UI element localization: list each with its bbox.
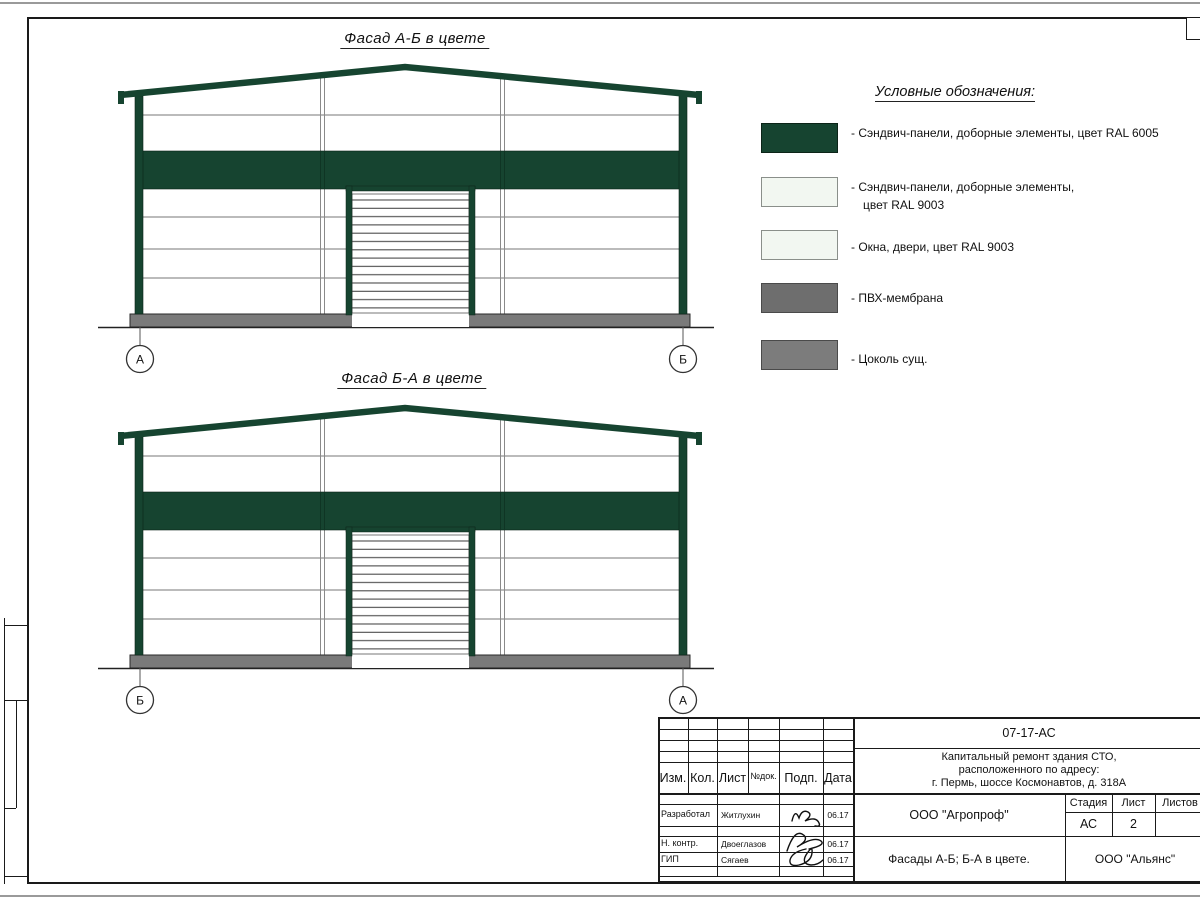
rev-header-podp: Подп. <box>779 762 823 794</box>
legend-label-line2: цвет RAL 9003 <box>863 196 944 214</box>
legend-label: - Сэндвич-панели, доборные элементы, <box>851 178 1074 196</box>
staff-date: 06.17 <box>823 855 853 866</box>
rev-header-list: Лист <box>717 762 748 794</box>
legend-swatch-ral9003-panels <box>761 177 838 207</box>
staff-name: Житлухин <box>721 810 779 821</box>
facade-ab-drawing: А Б <box>98 67 714 373</box>
legend-label: - Цоколь сущ. <box>851 350 927 368</box>
staff-name: Двоеглазов <box>721 839 779 850</box>
sheet-value: 2 <box>1112 817 1155 831</box>
signatures <box>787 811 823 865</box>
designer-org: ООО "Агропроф" <box>853 808 1065 822</box>
legend-swatch-windows-doors <box>761 230 838 260</box>
legend-label: - Окна, двери, цвет RAL 9003 <box>851 238 1014 256</box>
project-line-1: Капитальный ремонт здания СТО, <box>855 751 1200 764</box>
legend-label: - ПВХ-мембрана <box>851 289 943 307</box>
staff-name: Сягаев <box>721 855 779 866</box>
staff-date: 06.17 <box>823 810 853 821</box>
staff-role: Н. контр. <box>661 838 717 849</box>
axis-label: Б <box>136 694 144 708</box>
rev-header-izm: Изм. <box>658 762 688 794</box>
legend-swatch-pvc-membrane <box>761 283 838 313</box>
stage-value: АС <box>1065 817 1112 831</box>
axis-label: Б <box>679 353 687 367</box>
legend-swatch-ral6005 <box>761 123 838 153</box>
staff-date: 06.17 <box>823 839 853 850</box>
drawing-sheet: А Б Б А Фасад А-Б в цвете Фасад Б-А в цв… <box>0 0 1200 900</box>
facade-ba-title: Фасад Б-А в цвете <box>337 370 486 389</box>
legend-label: - Сэндвич-панели, доборные элементы, цве… <box>851 124 1159 142</box>
facade-ab-title: Фасад А-Б в цвете <box>340 30 489 49</box>
company-name: ООО "Альянс" <box>1065 852 1200 866</box>
rev-header-data: Дата <box>823 762 853 794</box>
project-line-3: г. Пермь, шоссе Космонавтов, д. 318А <box>855 777 1200 790</box>
project-line-2: расположенного по адресу: <box>855 764 1200 777</box>
sheet-title: Фасады А-Б; Б-А в цвете. <box>853 852 1065 866</box>
staff-role: ГИП <box>661 854 717 865</box>
rev-header-ndok: №док. <box>748 771 779 781</box>
stage-label: Стадия <box>1065 797 1112 809</box>
staff-role: Разработал <box>661 809 717 820</box>
document-code: 07-17-АС <box>853 726 1200 740</box>
axis-label: А <box>136 353 144 367</box>
axis-label: А <box>679 694 687 708</box>
sheet-label: Лист <box>1112 797 1155 809</box>
legend-swatch-plinth <box>761 340 838 370</box>
legend-title: Условные обозначения: <box>875 84 1035 102</box>
facade-ba-drawing: Б А <box>98 408 714 714</box>
rev-header-kol: Кол. <box>688 762 717 794</box>
sheets-label: Листов <box>1155 797 1200 809</box>
